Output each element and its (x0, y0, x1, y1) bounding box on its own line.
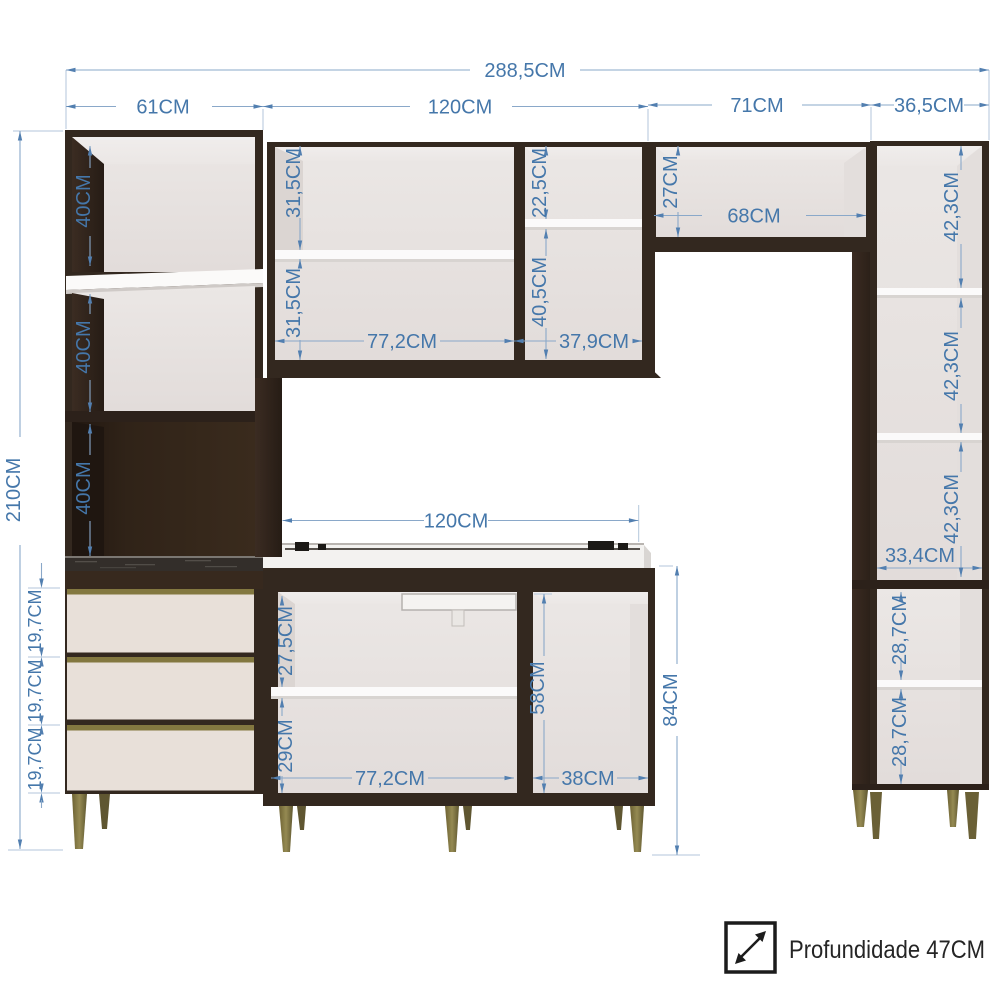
svg-text:84CM: 84CM (660, 673, 682, 726)
svg-text:210CM: 210CM (3, 458, 25, 522)
svg-text:40CM: 40CM (73, 461, 95, 514)
svg-text:22,5CM: 22,5CM (529, 148, 551, 218)
svg-text:58CM: 58CM (527, 661, 549, 714)
svg-text:38CM: 38CM (561, 768, 614, 790)
svg-text:28,7CM: 28,7CM (889, 697, 911, 767)
svg-text:33,4CM: 33,4CM (885, 545, 955, 567)
svg-text:28,7CM: 28,7CM (889, 595, 911, 665)
svg-text:27CM: 27CM (660, 155, 682, 208)
svg-text:288,5CM: 288,5CM (484, 60, 565, 82)
svg-text:71CM: 71CM (730, 95, 783, 117)
svg-text:19,7CM: 19,7CM (25, 589, 45, 652)
svg-text:42,3CM: 42,3CM (941, 474, 963, 544)
svg-text:36,5CM: 36,5CM (894, 95, 964, 117)
svg-text:42,3CM: 42,3CM (941, 331, 963, 401)
svg-text:37,9CM: 37,9CM (559, 331, 629, 353)
svg-text:Profundidade 47CM: Profundidade 47CM (789, 936, 985, 964)
svg-text:68CM: 68CM (727, 206, 780, 228)
svg-text:40CM: 40CM (73, 174, 95, 227)
svg-text:40,5CM: 40,5CM (529, 257, 551, 327)
svg-text:120CM: 120CM (428, 97, 492, 119)
svg-text:19,7CM: 19,7CM (25, 727, 45, 790)
svg-text:40CM: 40CM (73, 320, 95, 373)
svg-text:29CM: 29CM (275, 719, 297, 772)
svg-text:77,2CM: 77,2CM (355, 768, 425, 790)
svg-text:31,5CM: 31,5CM (283, 268, 305, 338)
svg-text:77,2CM: 77,2CM (367, 331, 437, 353)
svg-text:120CM: 120CM (424, 511, 488, 533)
svg-text:19,7CM: 19,7CM (25, 659, 45, 722)
svg-text:31,5CM: 31,5CM (283, 148, 305, 218)
svg-text:27,5CM: 27,5CM (275, 606, 297, 676)
svg-text:42,3CM: 42,3CM (941, 172, 963, 242)
svg-text:61CM: 61CM (136, 97, 189, 119)
